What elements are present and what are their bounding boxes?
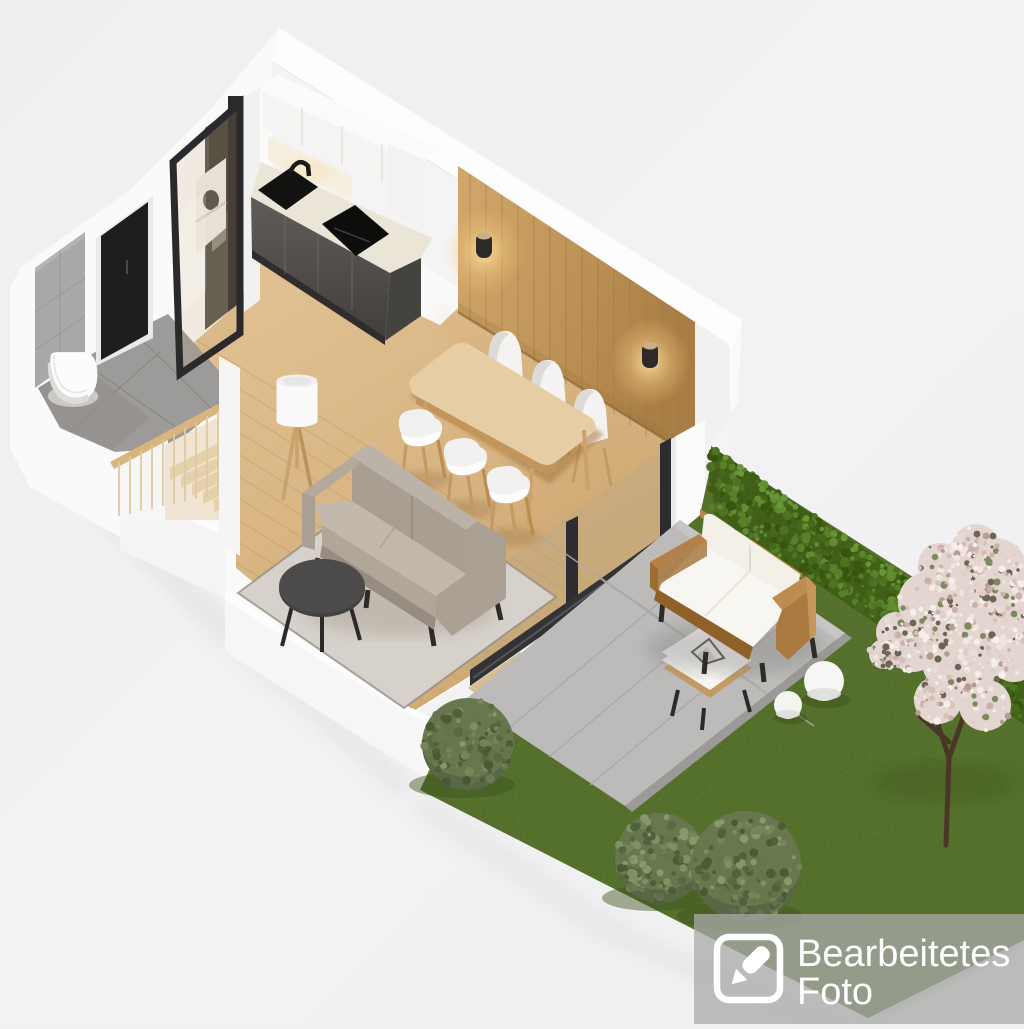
svg-text:Foto: Foto bbox=[797, 971, 873, 1013]
svg-text:Bearbeitetes: Bearbeitetes bbox=[797, 933, 1010, 975]
